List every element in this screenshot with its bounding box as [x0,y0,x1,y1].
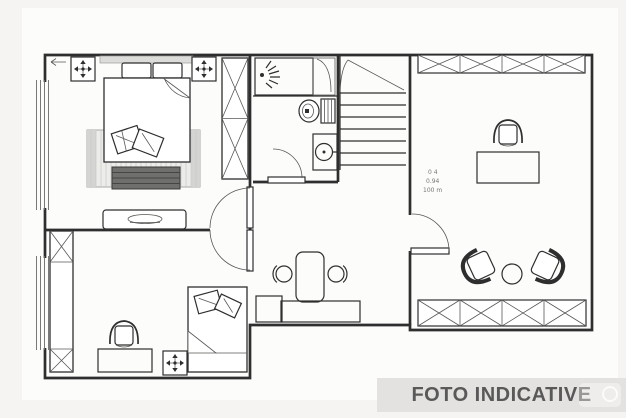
watermark-banner: FOTO INDICATIVE [377,378,626,412]
bench [112,167,180,189]
floor-plan-image: 0 4 0.94 100 m FOTO INDICATIVE [0,0,626,418]
wardrobe-bedroom-1 [222,58,248,179]
watermark-logo-ghost [579,383,621,407]
wardrobe-bedroom-2 [50,231,73,372]
ceiling-light-icon [163,351,187,375]
cabinet-bottom [418,300,586,326]
double-bed [104,63,190,162]
ceiling-light-icon [71,57,95,81]
pillow [122,63,151,78]
headboard [100,56,193,63]
floor-plan: 0 4 0.94 100 m [0,0,626,418]
room-annotation-line1: 0 4 [428,169,438,176]
ceiling-light-icon [192,57,216,81]
shower-head-icon [260,73,264,77]
single-bed [188,287,247,372]
watermark-label: FOTO INDICATIVE [411,384,591,407]
dresser [103,210,186,229]
pillow [153,63,182,78]
wardrobe-top [418,55,585,73]
room-annotation-line3: 100 m [423,187,442,194]
room-annotation-line2: 0.94 [426,178,440,185]
